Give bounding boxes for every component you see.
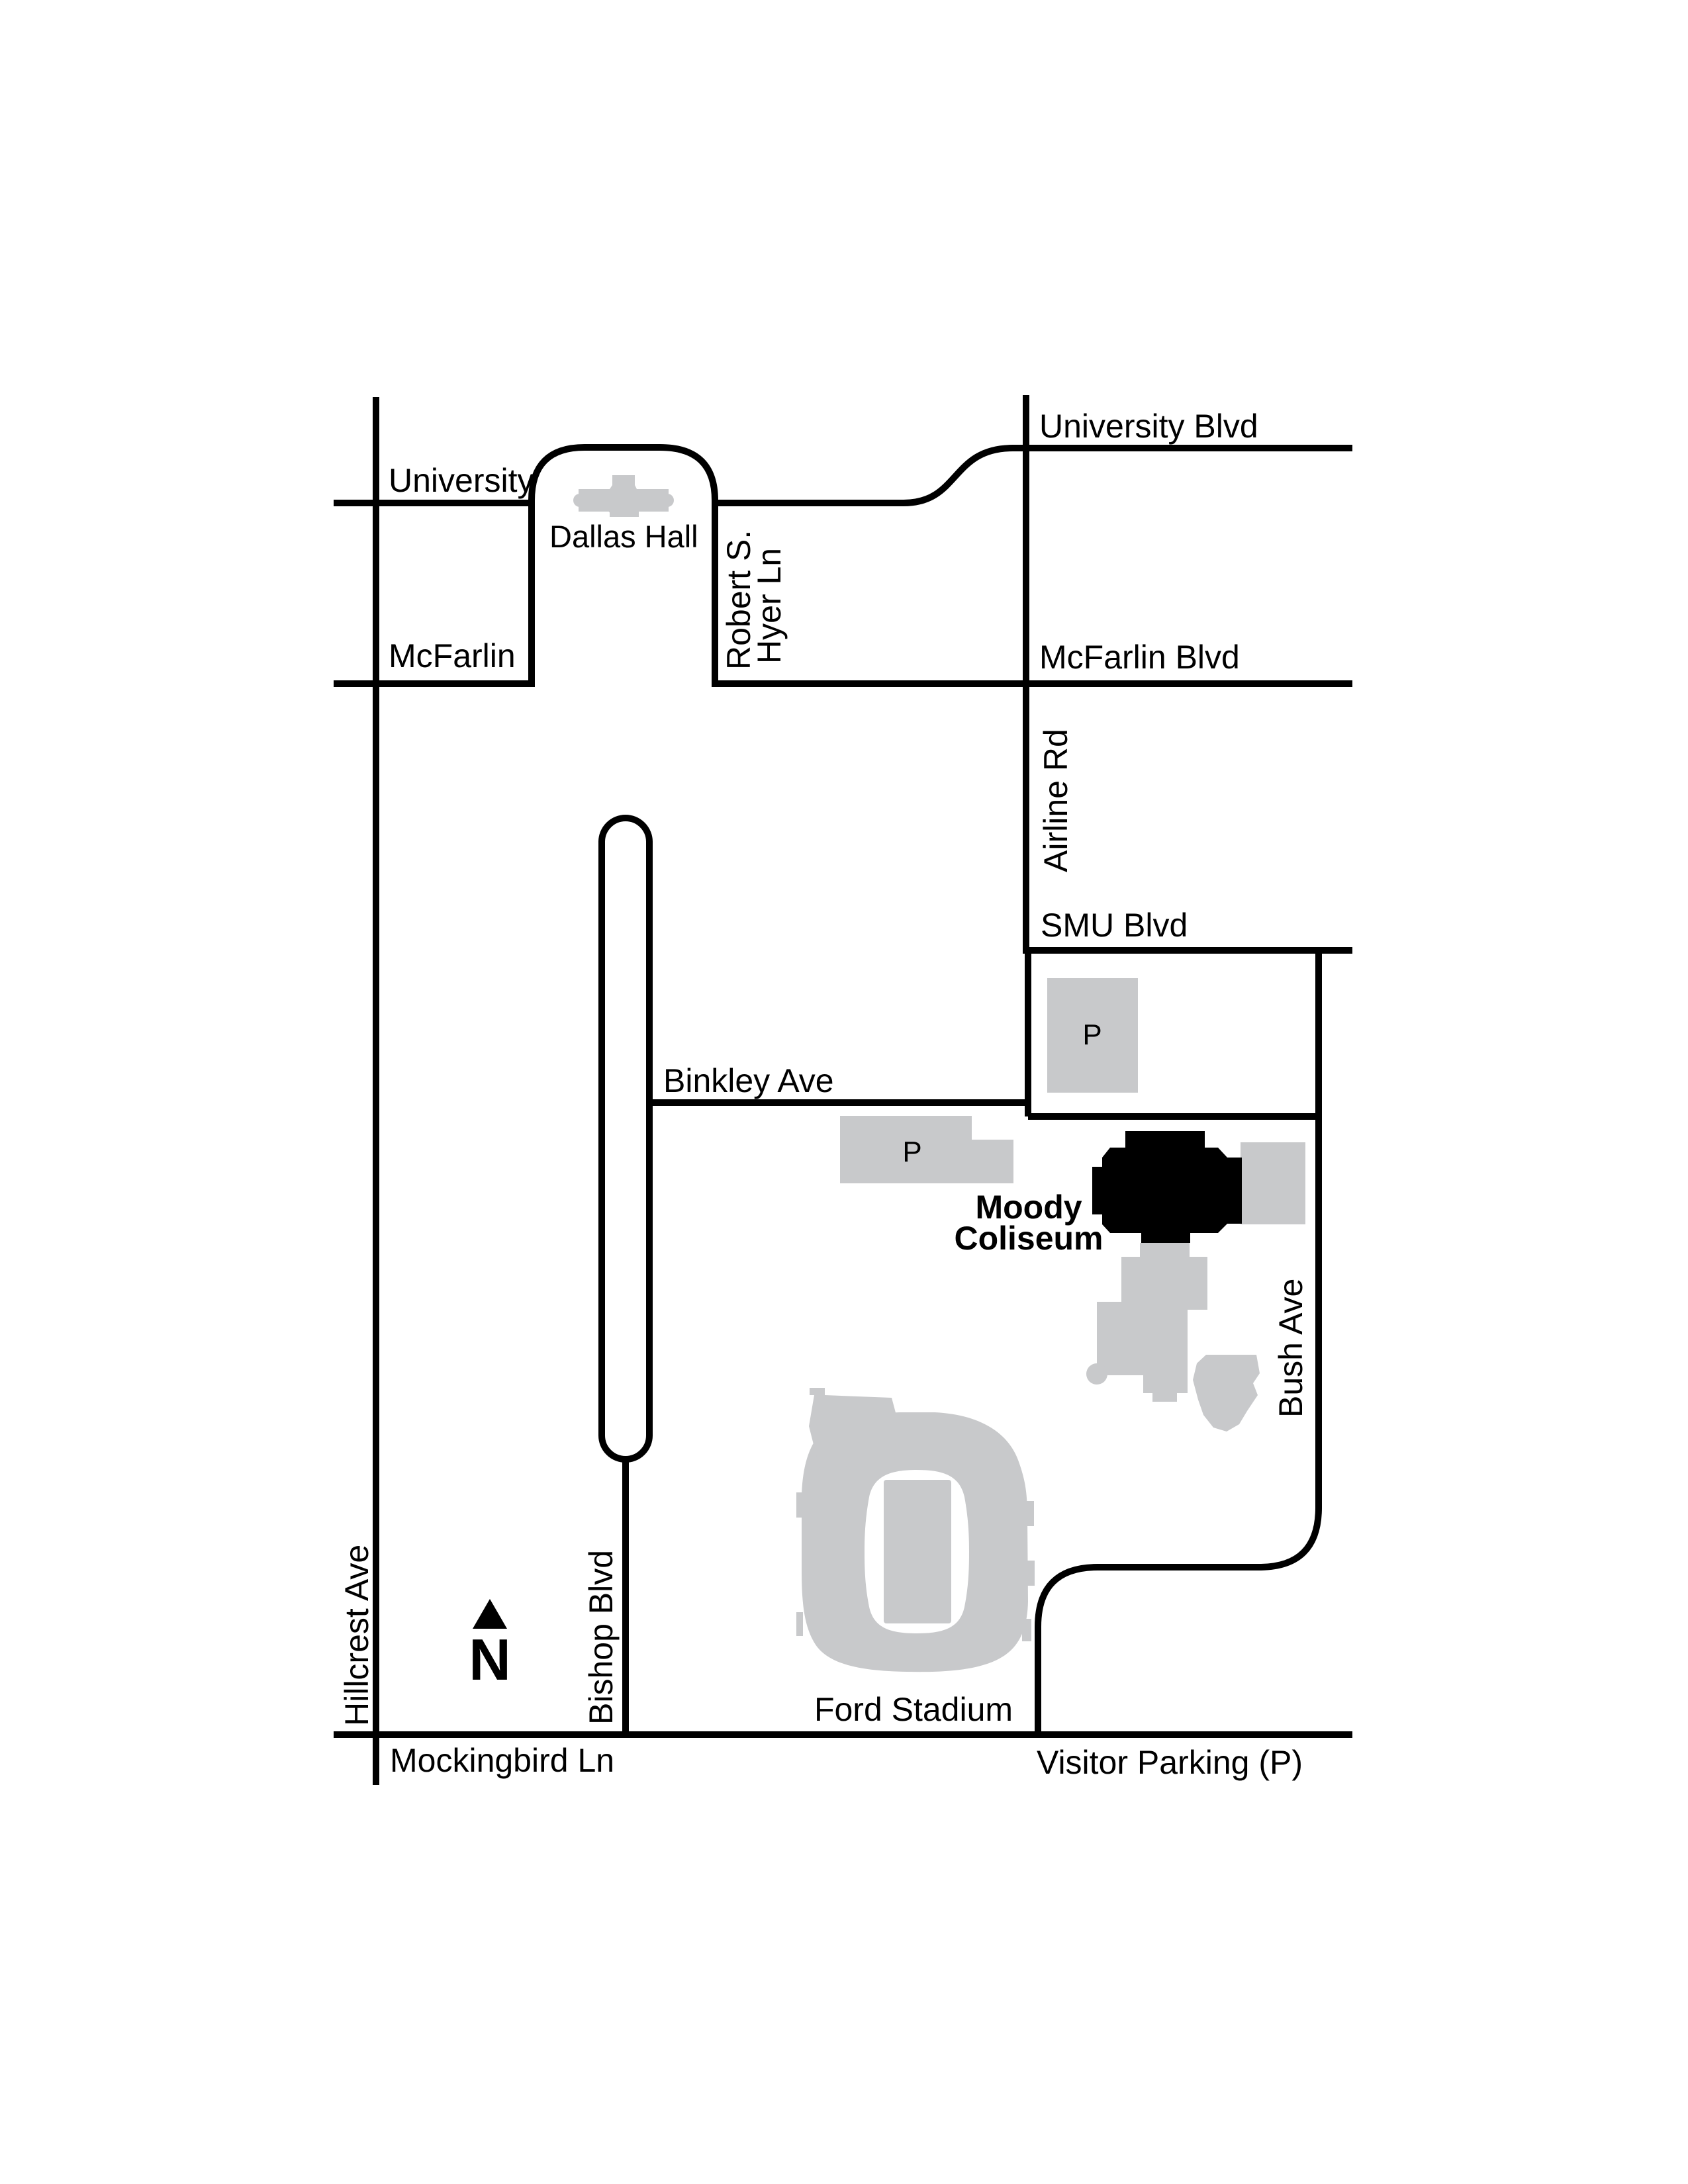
svg-text:Ford Stadium: Ford Stadium	[814, 1691, 1013, 1728]
svg-text:Binkley Ave: Binkley Ave	[663, 1062, 834, 1099]
svg-text:SMU Blvd: SMU Blvd	[1041, 907, 1188, 944]
svg-text:Dallas Hall: Dallas Hall	[549, 519, 698, 554]
svg-text:P: P	[902, 1136, 921, 1168]
svg-text:Airline Rd: Airline Rd	[1037, 729, 1074, 872]
svg-text:Bush Ave: Bush Ave	[1272, 1279, 1309, 1418]
svg-text:Bishop Blvd: Bishop Blvd	[583, 1550, 620, 1725]
svg-text:Visitor Parking (P): Visitor Parking (P)	[1037, 1744, 1303, 1781]
svg-text:University: University	[389, 462, 534, 499]
svg-text:Hyer Ln: Hyer Ln	[751, 548, 788, 664]
svg-text:McFarlin Blvd: McFarlin Blvd	[1039, 639, 1240, 676]
svg-text:P: P	[1082, 1019, 1102, 1051]
svg-text:N: N	[469, 1627, 511, 1692]
svg-text:Mockingbird Ln: Mockingbird Ln	[390, 1742, 614, 1779]
svg-text:Coliseum: Coliseum	[954, 1220, 1103, 1257]
svg-text:Hillcrest Ave: Hillcrest Ave	[338, 1545, 375, 1726]
svg-text:University Blvd: University Blvd	[1039, 408, 1258, 445]
svg-text:McFarlin: McFarlin	[389, 637, 516, 674]
